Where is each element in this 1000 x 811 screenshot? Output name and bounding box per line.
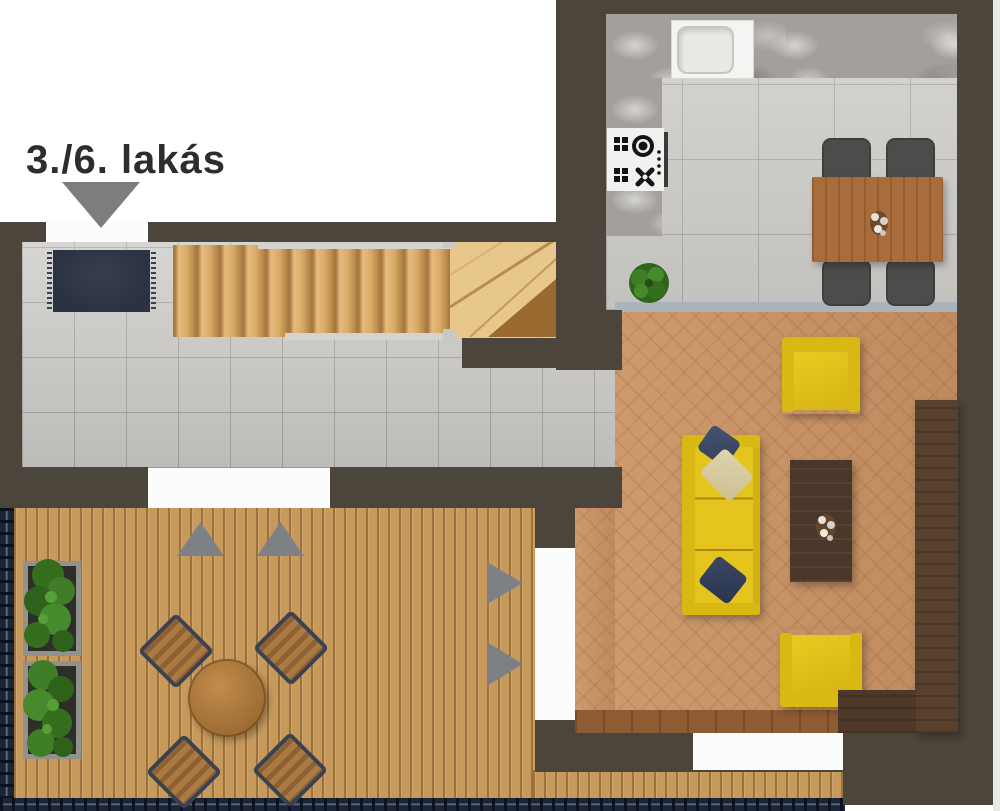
wall-terrace-living-upper [535, 493, 575, 548]
wall-top-kitchen [556, 0, 993, 14]
plant-icon [626, 260, 672, 306]
stair-post-bottom [443, 329, 456, 342]
doormat-fringe-left [47, 252, 52, 310]
armchair-arm-right [848, 345, 860, 412]
wall-bottom-right-block [843, 733, 993, 805]
apartment-label: 3./6. lakás [26, 138, 226, 183]
coffee-table-decor [808, 505, 844, 549]
doormat-fringe-right [151, 252, 156, 310]
wall-stair-stub [462, 338, 622, 368]
wall-hall-terrace-left [0, 467, 148, 508]
stair-winder [450, 237, 556, 337]
planter-plants [13, 655, 91, 763]
table-decor-icon [808, 505, 844, 549]
centerpiece-icon [862, 203, 896, 243]
stair-winder-graphic [450, 237, 556, 337]
doormat [53, 250, 150, 312]
wall-hall-left [0, 222, 22, 505]
entry-door-opening [46, 222, 148, 242]
armchair-seat [794, 352, 848, 410]
armchair-seat [792, 635, 850, 692]
dining-chair [822, 259, 871, 306]
plants-icon [13, 553, 91, 658]
sofa-arm-bottom [682, 603, 760, 615]
plants-icon [13, 655, 91, 763]
stair-rail-top [258, 242, 450, 249]
staircase [173, 245, 450, 337]
wall-kitchen-left [556, 0, 606, 342]
armchair-arm-left [780, 633, 792, 695]
cooktop-burners-icon [607, 128, 664, 191]
sofa-back [682, 435, 695, 615]
media-sideboard-vertical [915, 400, 958, 733]
wall-right [957, 0, 993, 775]
armchair-arm-right [850, 633, 862, 695]
terrace-railing-left [0, 505, 14, 811]
wall-hall-terrace-right [330, 467, 622, 508]
terrace-living-door [535, 548, 575, 720]
media-sideboard-horizontal [838, 690, 916, 733]
stair-rail-bottom [285, 333, 450, 340]
background-edge [993, 0, 1000, 811]
living-room-floor-extension [575, 493, 615, 712]
sink-basin [677, 26, 734, 74]
sofa-front-edge [753, 447, 760, 603]
terrace-railing-bottom [0, 798, 845, 811]
dining-centerpiece [862, 203, 896, 243]
kitchen-counter-top [606, 14, 957, 78]
dining-chair [886, 259, 935, 306]
cooktop [607, 128, 664, 191]
wall-entry-top [148, 222, 557, 242]
floor-plan: 3./6. lakás [0, 0, 1000, 811]
wall-terrace-living-lower [535, 720, 575, 772]
terrace-round-table [188, 659, 266, 737]
living-room-window [693, 733, 843, 770]
oven-handle [664, 132, 668, 187]
kitchen-plant [626, 260, 672, 306]
sofa [682, 435, 760, 615]
armchair-arm-left [782, 345, 794, 412]
planter-plants [13, 553, 91, 658]
hall-terrace-door [148, 468, 330, 508]
armchair-top [782, 337, 860, 414]
